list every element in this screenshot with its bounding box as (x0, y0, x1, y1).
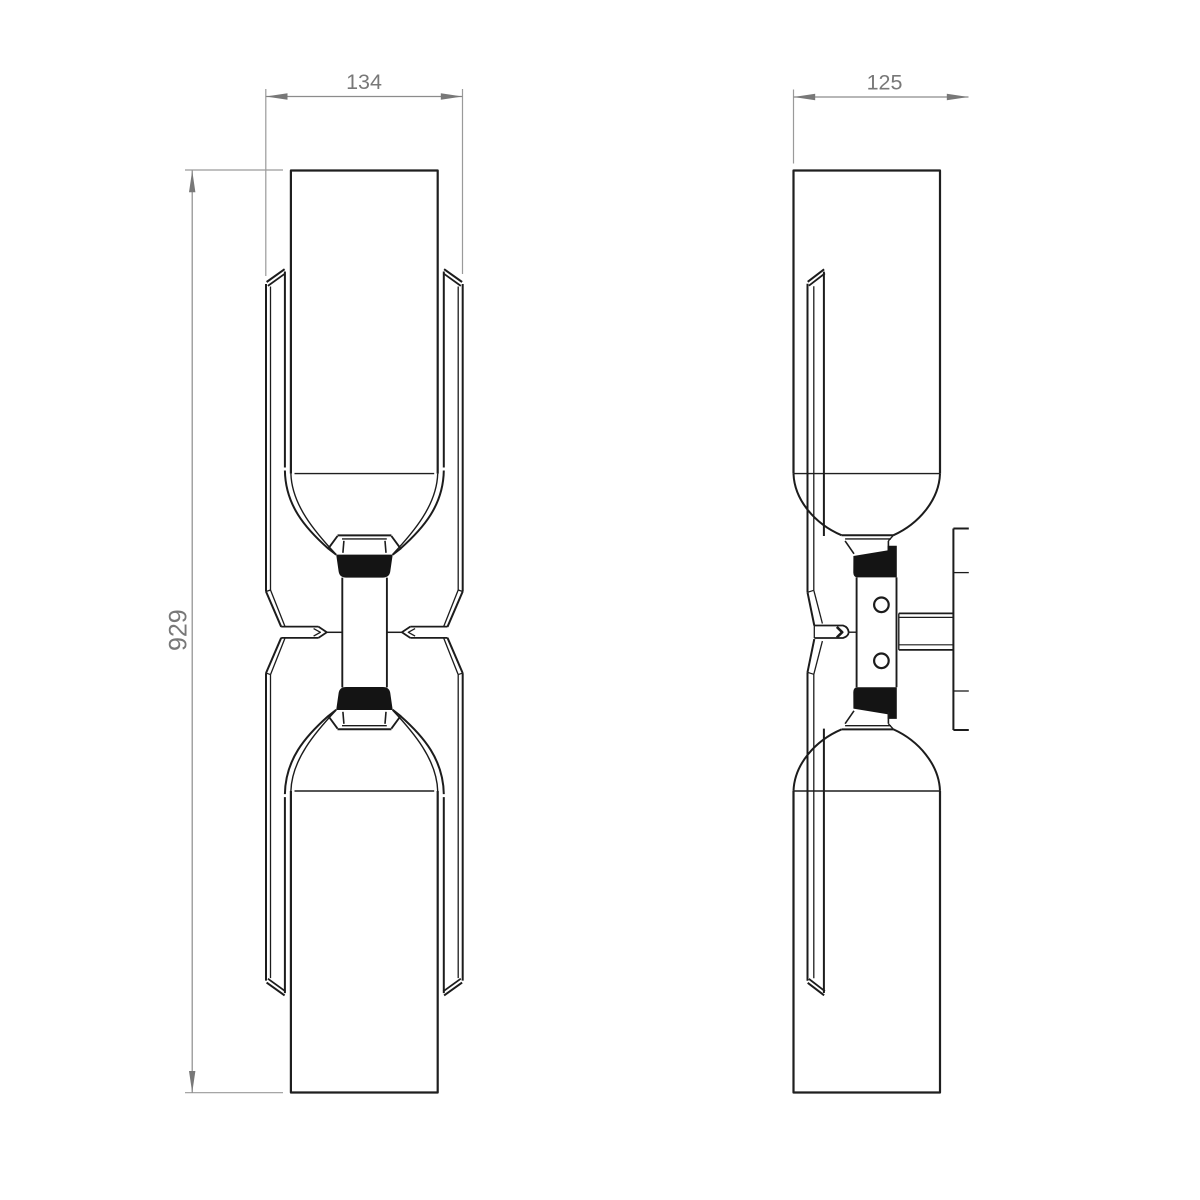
svg-text:134: 134 (346, 70, 382, 94)
svg-text:929: 929 (165, 609, 193, 651)
svg-text:125: 125 (867, 71, 903, 95)
